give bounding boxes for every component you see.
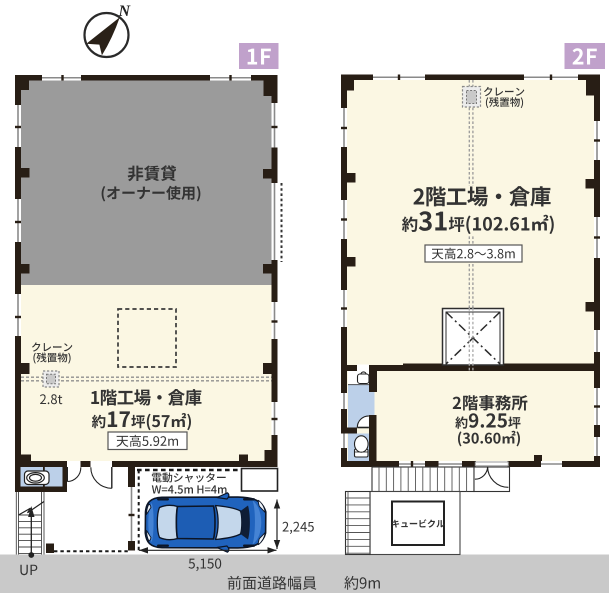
svg-text:N: N [118,3,132,20]
